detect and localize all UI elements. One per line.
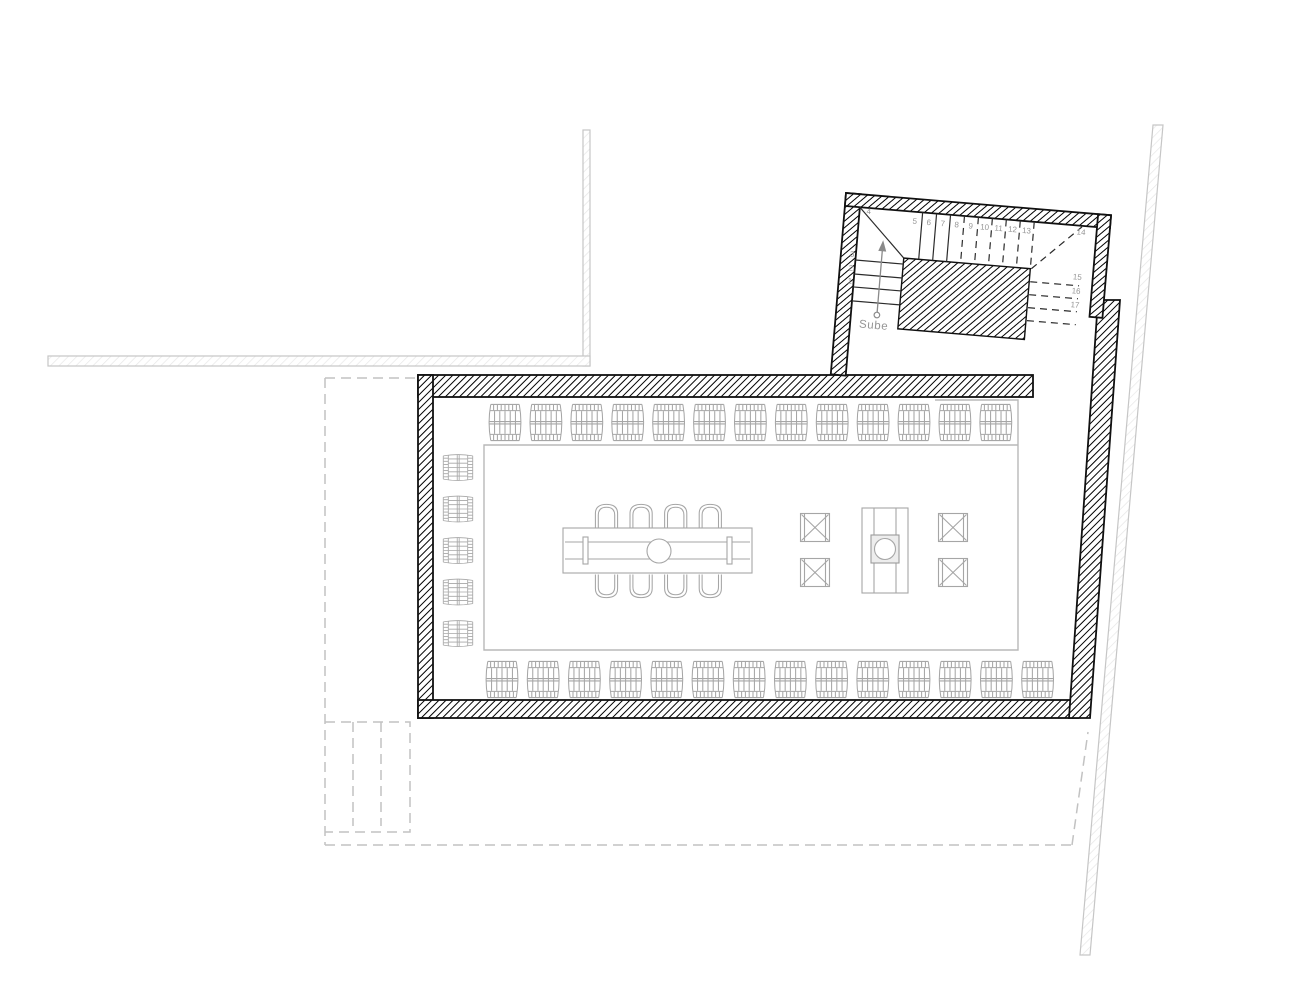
stair-step-number: 10: [980, 222, 990, 232]
stair-block: 1 2 3 4 5 6 7 8 9 10 11 12 13 14 15 16 1…: [831, 193, 1111, 397]
barrel-icon: [443, 455, 472, 481]
barrel-icon: [530, 404, 562, 440]
chair-icon: [595, 504, 617, 527]
chair-icon: [630, 504, 652, 527]
stair-step-number: 6: [926, 218, 932, 227]
stool-icon: [939, 514, 968, 542]
barrel-column-left: [443, 455, 472, 647]
barrel-icon: [610, 661, 642, 697]
barrel-icon: [939, 404, 971, 440]
stair-step-number: 13: [1022, 226, 1032, 236]
arrow-head-icon: [878, 240, 887, 252]
stair-step-number: 14: [1076, 227, 1086, 237]
barrel-icon: [568, 661, 600, 697]
floor-platform-outline: [484, 400, 1018, 650]
barrel-icon: [733, 661, 765, 697]
neighbor-wall-horizontal: [48, 356, 590, 366]
neighbor-wall-vertical: [583, 130, 590, 366]
barrel-icon: [489, 404, 521, 440]
chair-icon: [699, 504, 721, 527]
floor-plan-canvas: 1 2 3 4 5 6 7 8 9 10 11 12 13 14 15 16 1…: [0, 0, 1294, 1000]
arrow-start-dot: [874, 312, 880, 318]
barrel-icon: [980, 661, 1012, 697]
barrel-icon: [939, 661, 971, 697]
barrel-icon: [774, 661, 806, 697]
hidden-stair-below: [325, 722, 410, 832]
stool-icon: [801, 559, 830, 587]
wall-top: [418, 375, 1033, 397]
dashed-line-right: [1072, 732, 1088, 845]
wall-left: [418, 375, 433, 718]
stool-icon: [801, 514, 830, 542]
stair-step-number: 4: [866, 207, 872, 216]
stair-step-number: 12: [1008, 225, 1018, 235]
chair-icon: [699, 574, 721, 597]
stair-direction-arrow: Sube: [859, 239, 896, 333]
barrel-icon: [443, 538, 472, 564]
chair-icon: [595, 574, 617, 597]
barrel-icon: [857, 661, 889, 697]
barrel-icon: [443, 579, 472, 605]
barrel-icon: [775, 404, 807, 440]
barrel-icon: [898, 661, 930, 697]
barrel-icon: [443, 621, 472, 647]
stair-step-number: 8: [954, 220, 960, 229]
chairs-top: [595, 504, 721, 527]
barrel-icon: [486, 661, 518, 697]
stair-step-number: 9: [968, 221, 974, 230]
stair-direction-label: Sube: [859, 319, 889, 333]
barrel-icon: [898, 404, 930, 440]
barrel-icon: [857, 404, 889, 440]
floor-plan-drawing: 1 2 3 4 5 6 7 8 9 10 11 12 13 14 15 16 1…: [0, 0, 1294, 1000]
stair-step-number: 17: [1070, 300, 1080, 310]
chairs-bottom: [595, 574, 721, 597]
table-support-left: [583, 537, 588, 564]
stool-icon: [939, 559, 968, 587]
barrel-icon: [694, 404, 726, 440]
barrel-icon: [443, 496, 472, 522]
barrel-icon: [816, 661, 848, 697]
stair-step-number: 15: [1073, 272, 1083, 282]
chair-icon: [630, 574, 652, 597]
barrel-icon: [980, 404, 1012, 440]
barrel-icon: [612, 404, 644, 440]
barrel-row-top: [489, 404, 1012, 440]
dashed-boundary-lines: [325, 378, 1088, 845]
dining-table-group: [563, 504, 752, 597]
barrel-icon: [816, 404, 848, 440]
barrel-icon: [653, 404, 685, 440]
table-support-right: [727, 537, 732, 564]
chair-icon: [665, 504, 687, 527]
stair-step-number: 7: [940, 219, 946, 228]
press-bowl: [875, 539, 896, 560]
stair-step-number: 11: [994, 224, 1004, 234]
press-table-group: [801, 508, 968, 593]
barrel-row-bottom: [486, 661, 1053, 697]
barrel-icon: [1022, 661, 1054, 697]
barrel-icon: [734, 404, 766, 440]
chair-icon: [665, 574, 687, 597]
stair-wall-left: [831, 193, 861, 376]
barrel-icon: [527, 661, 559, 697]
wall-bottom: [418, 700, 1078, 718]
stair-step-number: 5: [912, 217, 918, 226]
barrel-icon: [692, 661, 724, 697]
table-centerpiece: [647, 539, 671, 563]
barrel-icon: [651, 661, 683, 697]
stair-spine-wall: [898, 258, 1030, 339]
barrel-icon: [571, 404, 603, 440]
stair-step-number: 16: [1071, 286, 1081, 296]
